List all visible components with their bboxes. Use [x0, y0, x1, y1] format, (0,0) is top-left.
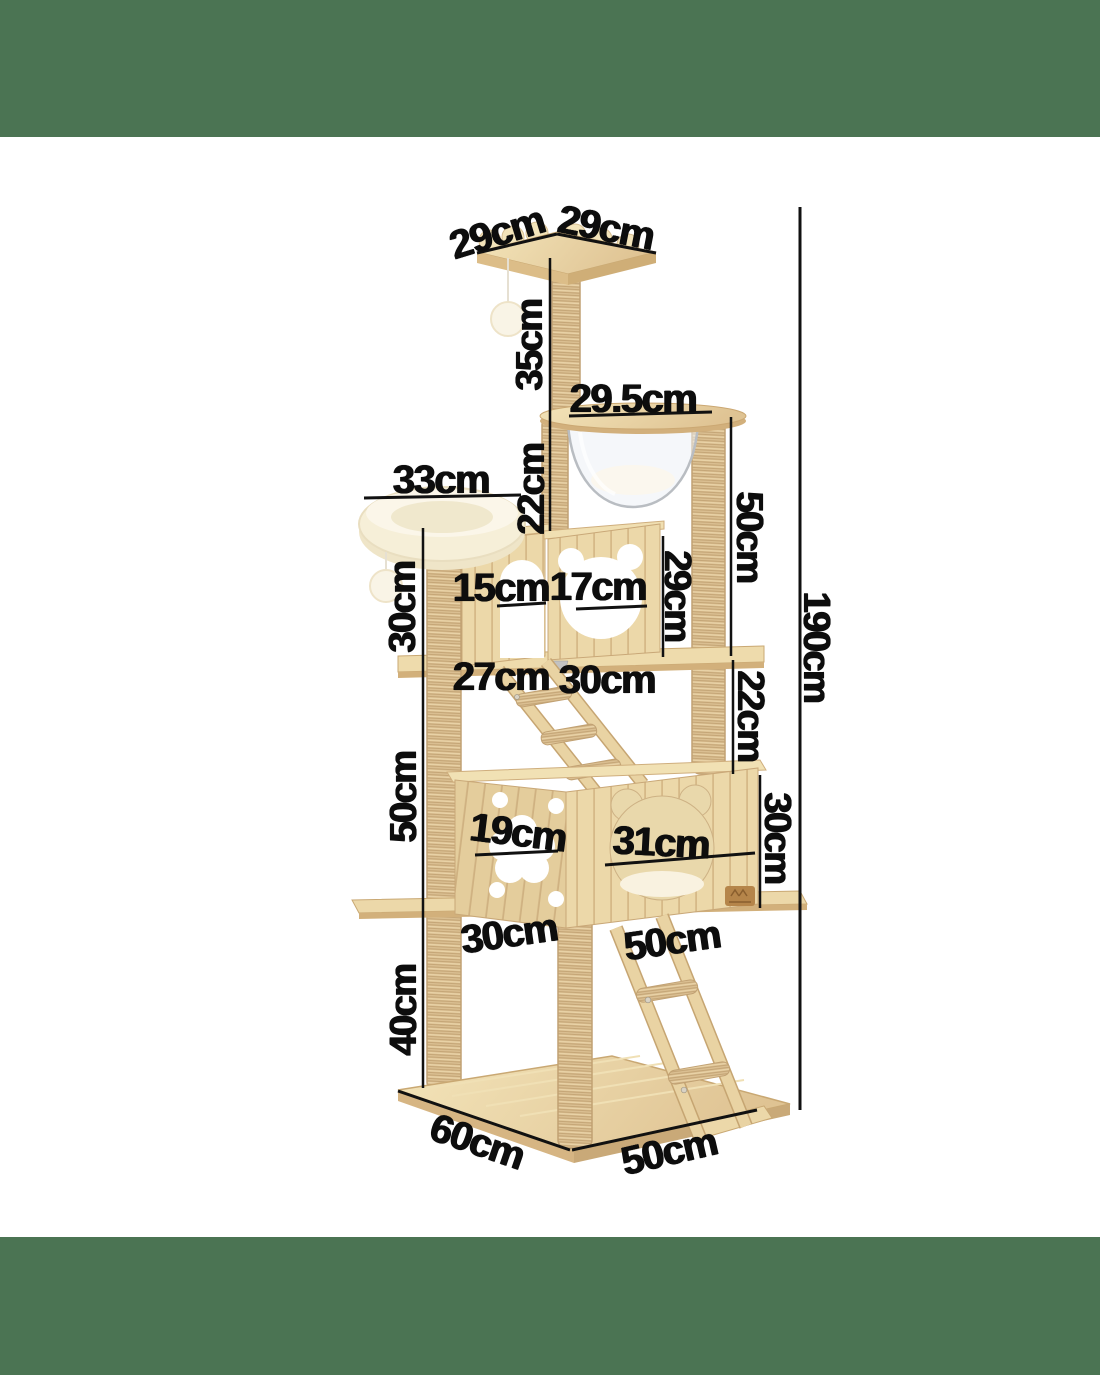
- dim-condo-height: 30cm: [758, 792, 796, 883]
- diagram-canvas: 29cm 29cm 35cm 29.5cm 33cm 22cm 50cm 30c…: [0, 0, 1100, 1375]
- dim-top-post-height: 35cm: [511, 299, 549, 390]
- dim-base-post-height: 40cm: [385, 964, 423, 1055]
- dim-capsule-platform-width: 29.5cm: [570, 379, 697, 419]
- dim-shelf-left-depth: 27cm: [453, 657, 549, 697]
- dim-mid-post-height: 50cm: [385, 751, 423, 842]
- base-post: [558, 912, 592, 1148]
- dim-cube-house-height: 29cm: [658, 550, 696, 641]
- dim-cat-hole-width: 31cm: [612, 821, 710, 866]
- dim-capsule-to-shelf-height: 50cm: [730, 491, 768, 582]
- capsule-bowl: [568, 424, 698, 507]
- dim-capsule-to-cube-gap: 22cm: [513, 443, 551, 534]
- dim-bed-post-height: 30cm: [384, 561, 422, 652]
- cat-tree-illustration: [0, 0, 1100, 1375]
- dim-arch-window-width: 15cm: [453, 568, 549, 608]
- brand-logo: [725, 886, 755, 906]
- dim-bear-window-width: 17cm: [550, 567, 646, 607]
- dim-plush-bed-width: 33cm: [393, 460, 489, 500]
- dim-shelf-right-depth: 30cm: [559, 660, 655, 700]
- dim-total-height: 190cm: [797, 592, 835, 703]
- dim-shelf-to-condo-gap: 22cm: [731, 670, 769, 761]
